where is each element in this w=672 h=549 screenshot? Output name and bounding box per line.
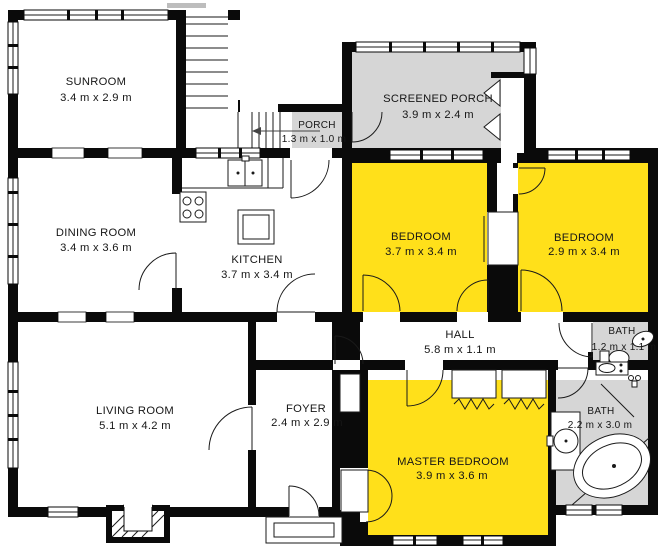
dims-sunroom: 3.4 m x 2.9 m: [60, 92, 132, 104]
dims-hall: 5.8 m x 1.1 m: [424, 344, 496, 356]
label-porch: PORCH: [298, 120, 336, 131]
closet: [452, 370, 496, 398]
closet: [340, 374, 360, 412]
dims-foyer: 2.4 m x 2.9 m: [271, 417, 343, 429]
dims-porch: 1.3 m x 1.0 m: [282, 134, 346, 145]
label-hall: HALL: [445, 329, 474, 341]
window: [548, 150, 630, 160]
cased-opening: [58, 312, 86, 322]
room-porch: [292, 112, 342, 152]
dims-dining-room: 3.4 m x 3.6 m: [60, 242, 132, 254]
label-bedroom-1: BEDROOM: [391, 231, 451, 243]
window: [524, 48, 536, 74]
label-foyer: FOYER: [286, 403, 326, 415]
kitchen-island-icon: [238, 210, 274, 244]
closet: [341, 470, 368, 512]
window: [390, 150, 483, 160]
kitchen-sink-icon: [228, 156, 262, 186]
deck-railing: [167, 3, 206, 8]
dims-living-room: 5.1 m x 4.2 m: [99, 420, 171, 432]
dims-screened-porch: 3.9 m x 2.4 m: [402, 109, 474, 121]
label-living-room: LIVING ROOM: [96, 405, 174, 417]
closet: [502, 370, 546, 398]
dims-bedroom-2: 2.9 m x 3.4 m: [548, 246, 620, 258]
label-sunroom: SUNROOM: [66, 76, 127, 88]
closet: [488, 212, 518, 265]
window: [8, 362, 18, 468]
label-kitchen: KITCHEN: [231, 254, 282, 266]
label-bath-small: BATH: [608, 326, 635, 337]
floorplan-canvas: SUNROOM 3.4 m x 2.9 m SCREENED PORCH 3.9…: [0, 0, 672, 549]
dims-bedroom-1: 3.7 m x 3.4 m: [385, 246, 457, 258]
label-dining-room: DINING ROOM: [56, 227, 136, 239]
window: [463, 536, 503, 545]
label-screened-porch: SCREENED PORCH: [383, 93, 493, 105]
window: [596, 505, 622, 515]
front-stoop: [266, 517, 342, 543]
cased-opening: [106, 312, 134, 322]
window: [196, 148, 260, 158]
cased-opening: [52, 148, 84, 158]
window: [8, 22, 18, 94]
dims-kitchen: 3.7 m x 3.4 m: [221, 269, 293, 281]
stove-icon: [180, 192, 206, 222]
window: [393, 536, 437, 545]
label-bath-large: BATH: [587, 406, 614, 417]
window: [48, 507, 78, 517]
window: [8, 178, 18, 284]
window: [24, 10, 168, 20]
dims-bath-small: 1.2 m x 1.1 m: [592, 342, 656, 353]
label-master-bedroom: MASTER BEDROOM: [397, 456, 509, 468]
cased-opening: [108, 148, 142, 158]
dims-master-bedroom: 3.9 m x 3.6 m: [416, 470, 488, 482]
label-bedroom-2: BEDROOM: [554, 232, 614, 244]
window: [356, 42, 520, 52]
floorplan-page: SUNROOM 3.4 m x 2.9 m SCREENED PORCH 3.9…: [0, 0, 672, 549]
fireplace-icon: [106, 503, 170, 543]
window: [566, 505, 592, 515]
dims-bath-large: 2.2 m x 3.0 m: [568, 420, 632, 431]
